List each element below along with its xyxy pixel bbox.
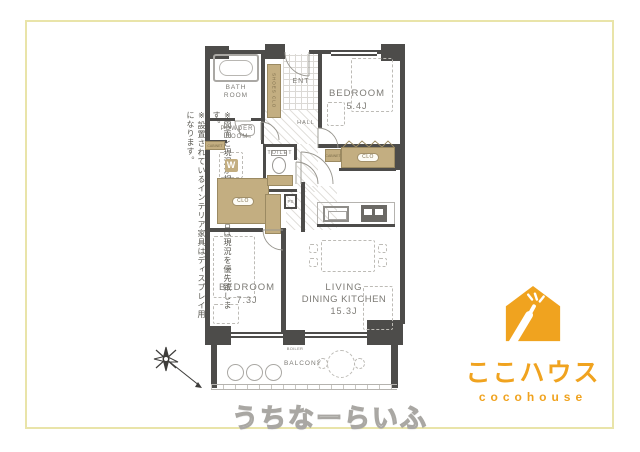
floor-plan: SHOES CLO CLO CABINET CLO CABINET W PS [205,44,405,404]
powder-room-label: POWDER ROOM [215,126,259,141]
floorplan-page: ※図面と現況が相違する場合は現況を優先致します。 ※設置されているインテリア家具… [0,0,640,452]
toilet-label: TOILET [264,150,296,157]
ldk-label-line1: LIVING [291,282,397,294]
ldk-label-line2: DINING KITCHEN [291,294,397,306]
bedroom-lower-size: 7.3J [207,295,287,306]
watermark: うちなーらいふ [180,398,480,435]
cocohouse-house-icon [502,284,564,346]
hall-label: HALL [293,120,319,127]
bathroom-label: BATH ROOM [217,84,255,100]
bedroom-lower-label: BEDROOM [207,282,287,294]
boiler-label: BOILER [283,346,307,351]
logo-title-jp: ここハウス [452,353,614,389]
company-logo: ここハウス cocohouse [452,284,614,404]
compass-icon [150,346,206,394]
bedroom-upper-label: BEDROOM [317,88,397,100]
ldk-size: 15.3J [291,306,397,317]
bedroom-upper-size: 5.4J [317,101,397,112]
logo-title-en: cocohouse [452,390,614,404]
balcony-label: BALCONY [273,360,333,368]
entrance-label: ENT [287,78,315,87]
